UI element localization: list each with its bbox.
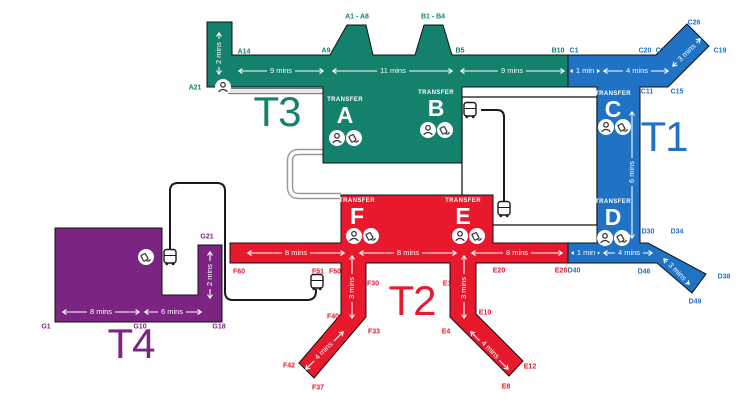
- passport-control-icon: [420, 122, 436, 138]
- gate-label-c20: C20: [639, 48, 652, 55]
- gate-label-c11: C11: [641, 89, 653, 96]
- gate-label-d30: D30: [642, 229, 655, 236]
- gate-label-d38: D38: [718, 274, 731, 281]
- gate-label-f51: F51: [312, 269, 324, 276]
- terminal-4-title: T4: [107, 323, 154, 365]
- transfer-point-B[interactable]: TRANSFER B: [418, 90, 454, 120]
- gate-label-a9: A9: [322, 48, 331, 55]
- walk-time-label: 8 mins: [503, 249, 531, 257]
- terminal-4-shape[interactable]: [55, 228, 222, 322]
- walk-time-label: 4 mins: [615, 249, 643, 257]
- passport-control-icon: [597, 230, 613, 246]
- terminal-1-title: T1: [640, 116, 687, 158]
- gate-label-b5: B5: [456, 48, 465, 55]
- walk-time-label: 2 mins: [215, 39, 223, 67]
- gate-label-g21: G21: [200, 234, 213, 241]
- walk-time-label: 1 min: [574, 249, 598, 257]
- bus-icon: [498, 202, 510, 218]
- bus-icon: [311, 275, 323, 291]
- transfer-letter: C: [595, 98, 631, 121]
- gate-label-f42: F42: [283, 363, 295, 370]
- gate-label-b1-b4: B1 - B4: [421, 14, 445, 21]
- gate-label-g18: G18: [212, 324, 225, 331]
- walk-time-label: 9 mins: [498, 67, 526, 75]
- gate-label-c1: C1: [570, 48, 579, 55]
- walk-time-label: 4 mins: [623, 67, 651, 75]
- gate-label-d46: D46: [638, 269, 651, 276]
- gate-label-a1-a8: A1 - A8: [345, 14, 369, 21]
- gate-label-f33: F33: [368, 329, 380, 336]
- walk-time-label: 8 mins: [87, 308, 115, 316]
- gate-label-f37: F37: [312, 385, 324, 392]
- gate-label-a14: A14: [238, 49, 251, 56]
- passport-control-icon: [346, 228, 362, 244]
- transfer-point-D[interactable]: TRANSFER D: [595, 199, 631, 229]
- transfer-desk-icon: [469, 228, 485, 244]
- walk-time-label: 8 mins: [282, 249, 310, 257]
- walk-time-label: 3 mins: [348, 274, 356, 302]
- airport-transfer-map: T3 T1 T2 T4 TRANSFER A TRANSFER B TRANSF…: [0, 0, 750, 411]
- transfer-desk-icon: [614, 230, 630, 246]
- gate-label-g10: G10: [133, 324, 146, 331]
- gate-label-d40: D40: [568, 268, 581, 275]
- gate-label-f30: F30: [367, 281, 379, 288]
- gate-label-e10: E10: [479, 310, 491, 317]
- gate-label-e1: E1: [443, 281, 452, 288]
- transfer-desk-icon: [138, 249, 154, 265]
- gate-label-f40: F40: [327, 314, 339, 321]
- gate-label-g1: G1: [41, 324, 50, 331]
- transfer-letter: E: [445, 205, 481, 228]
- transfer-desk-icon: [346, 130, 362, 146]
- transfer-letter: B: [418, 97, 454, 120]
- transfer-desk-icon: [363, 228, 379, 244]
- bus-icon: [164, 250, 176, 266]
- walk-time-label: 2 mins: [206, 261, 214, 289]
- walk-time-label: 3 mins: [460, 274, 468, 302]
- transfer-desk-icon: [437, 122, 453, 138]
- transfer-point-E[interactable]: TRANSFER E: [445, 198, 481, 228]
- gate-label-e12: E12: [524, 364, 536, 371]
- gate-label-f50: F50: [329, 269, 341, 276]
- walk-time-label: 6 mins: [628, 158, 636, 186]
- gate-label-e20: E20: [493, 268, 505, 275]
- transfer-point-C[interactable]: TRANSFER C: [595, 91, 631, 121]
- gate-label-c19: C19: [714, 48, 727, 55]
- transfer-letter: F: [339, 205, 375, 228]
- walk-time-label: 8 mins: [394, 249, 422, 257]
- terminal-3-title: T3: [253, 91, 300, 133]
- gate-label-c26: C26: [688, 20, 701, 27]
- passport-control-icon: [329, 130, 345, 146]
- walk-time-label: 11 mins: [377, 67, 409, 75]
- gate-label-e8: E8: [502, 384, 511, 391]
- gate-label-b10: B10: [552, 48, 565, 55]
- gate-label-e4: E4: [442, 329, 451, 336]
- transfer-point-F[interactable]: TRANSFER F: [339, 198, 375, 228]
- passport-control-icon: [452, 228, 468, 244]
- gate-label-a21: A21: [189, 85, 202, 92]
- gate-label-c15: C15: [671, 89, 684, 96]
- bus-route-t4-t2: [170, 183, 316, 300]
- transfer-point-A[interactable]: TRANSFER A: [327, 97, 363, 127]
- walk-time-label: 1 min: [573, 67, 597, 75]
- gate-label-d49: D49: [689, 299, 702, 306]
- gate-label-f60: F60: [233, 269, 245, 276]
- terminal-2-title: T2: [388, 280, 435, 322]
- passport-control-icon: [215, 79, 231, 95]
- gate-label-e28: E28: [555, 268, 567, 275]
- bus-icon: [464, 103, 476, 119]
- gate-label-d34: D34: [671, 229, 684, 236]
- gate-label-c23: C23: [656, 48, 669, 55]
- transfer-letter: D: [595, 206, 631, 229]
- walk-time-label: 9 mins: [267, 67, 295, 75]
- walk-time-label: 6 mins: [158, 308, 186, 316]
- transfer-letter: A: [327, 104, 363, 127]
